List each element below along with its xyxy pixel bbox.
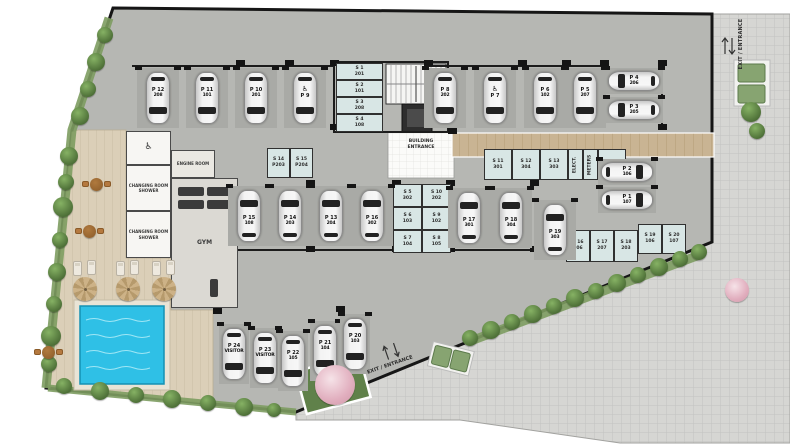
- swimming-pool: [74, 300, 170, 390]
- site-plan: S 1201S 2101S 3208S 4108S 14P203S 15P204…: [0, 0, 790, 445]
- elevator: [402, 104, 432, 132]
- exit-entrance-label-top: EXIT / ENTRANCE: [738, 16, 744, 72]
- site-plan-base: [0, 0, 790, 445]
- beige-path: [452, 133, 714, 157]
- building-entrance-label: BUILDING ENTRANCE: [403, 139, 439, 151]
- staircase: [386, 64, 446, 104]
